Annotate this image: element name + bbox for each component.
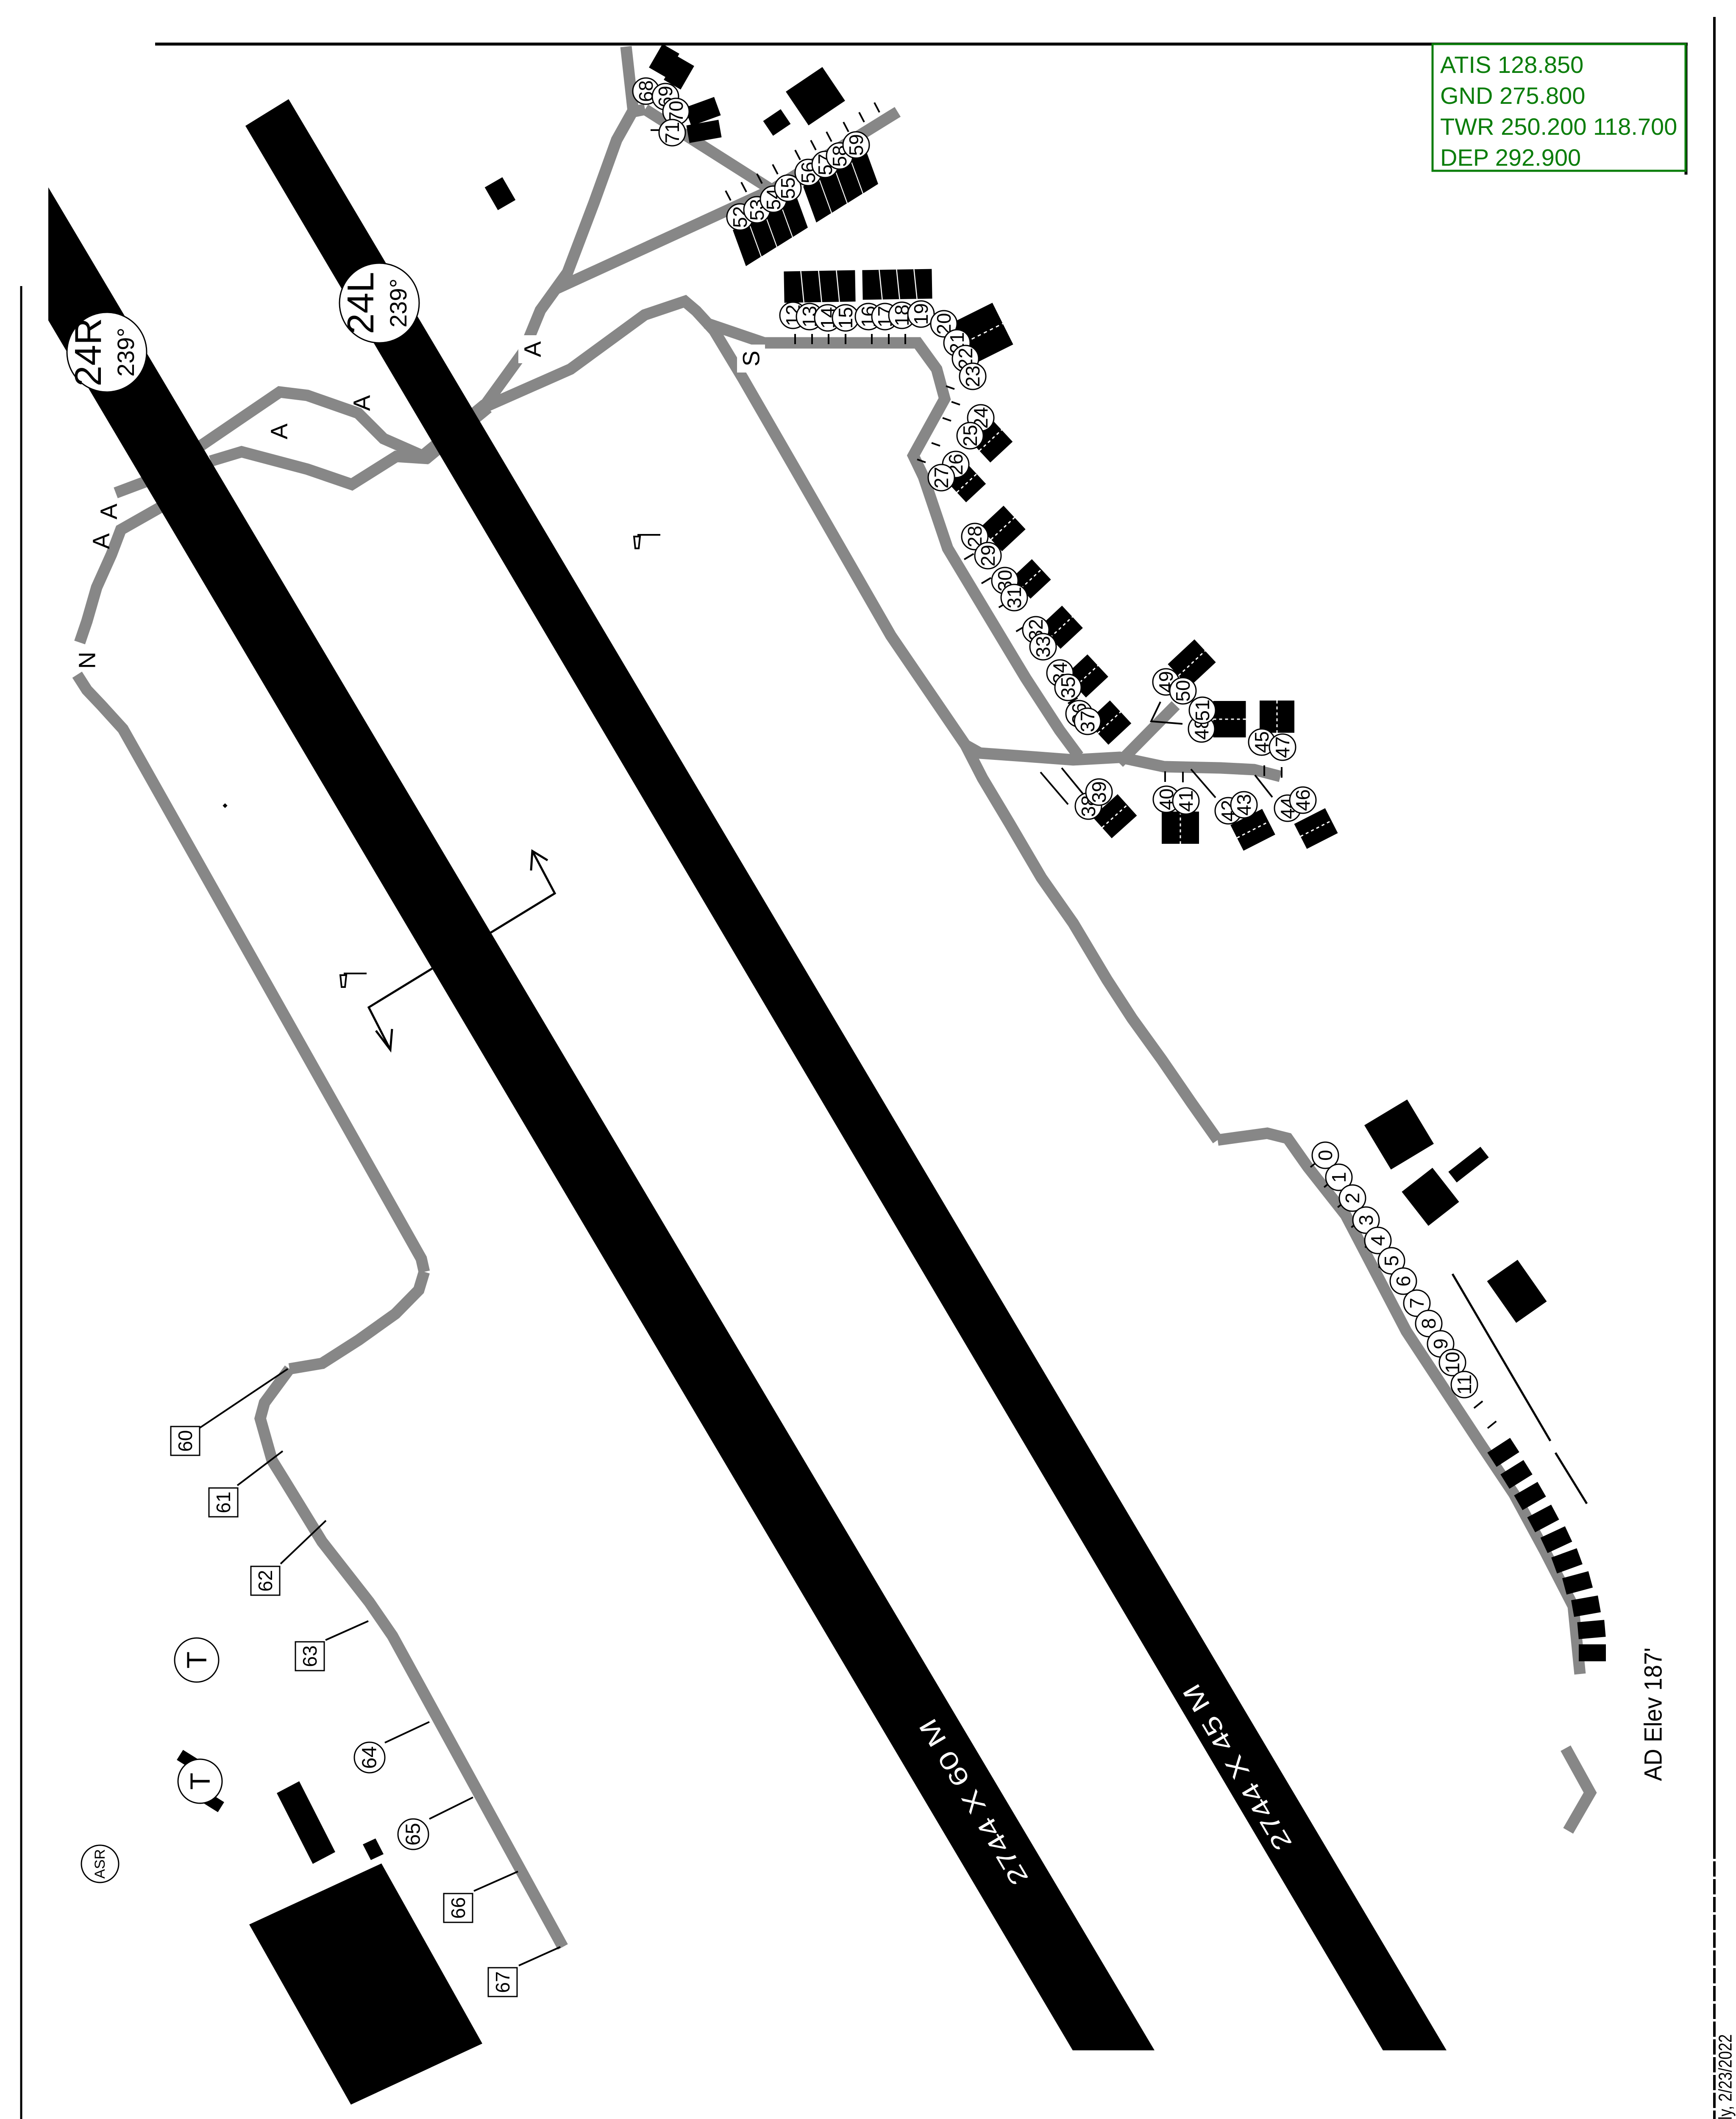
svg-text:S: S (738, 350, 765, 366)
svg-text:ATIS 128.850: ATIS 128.850 (1440, 51, 1583, 78)
svg-text:62: 62 (254, 1570, 276, 1591)
svg-text:65: 65 (402, 1823, 425, 1845)
svg-text:47: 47 (1271, 736, 1294, 758)
svg-text:61: 61 (212, 1491, 234, 1513)
svg-text:46: 46 (1292, 789, 1314, 811)
svg-text:24R: 24R (67, 318, 109, 386)
svg-text:11: 11 (1453, 1374, 1475, 1395)
svg-text:15: 15 (835, 307, 857, 328)
svg-text:50: 50 (1172, 680, 1194, 701)
svg-text:6: 6 (1392, 1276, 1414, 1287)
svg-text:59: 59 (845, 134, 867, 156)
svg-text:35: 35 (1057, 676, 1079, 698)
svg-text:A: A (88, 533, 114, 549)
svg-text:8: 8 (1418, 1318, 1440, 1329)
svg-text:43: 43 (1233, 794, 1255, 815)
svg-text:27: 27 (930, 467, 952, 488)
svg-text:60: 60 (174, 1430, 196, 1452)
svg-text:67: 67 (492, 1971, 514, 1993)
svg-text:25: 25 (959, 425, 981, 446)
svg-text:55: 55 (777, 177, 799, 199)
svg-text:1: 1 (1328, 1172, 1350, 1183)
svg-text:39: 39 (1088, 781, 1110, 803)
svg-text:AD Elev 187': AD Elev 187' (1640, 1648, 1667, 1781)
svg-text:T: T (184, 1773, 216, 1790)
svg-text:5: 5 (1380, 1255, 1402, 1266)
svg-text:N: N (74, 652, 100, 669)
svg-text:31: 31 (1003, 587, 1025, 608)
svg-text:A: A (348, 395, 375, 411)
svg-text:DEP 292.900: DEP 292.900 (1440, 144, 1581, 171)
svg-text:0: 0 (1314, 1150, 1336, 1161)
svg-text:7: 7 (1406, 1298, 1428, 1309)
svg-text:41: 41 (1175, 790, 1197, 812)
svg-text:71: 71 (661, 122, 683, 143)
svg-text:A: A (95, 503, 122, 520)
svg-text:64: 64 (359, 1746, 381, 1769)
svg-text:3: 3 (1355, 1215, 1377, 1226)
svg-text:10: 10 (1441, 1351, 1463, 1373)
svg-text:GND 275.800: GND 275.800 (1440, 82, 1585, 109)
svg-text:239°: 239° (112, 328, 139, 377)
svg-text:63: 63 (299, 1645, 321, 1667)
svg-text:70: 70 (665, 100, 687, 122)
svg-text:33: 33 (1032, 636, 1054, 657)
svg-text:19: 19 (910, 303, 932, 325)
svg-text:A: A (519, 341, 546, 357)
svg-text:TWR 250.200 118.700: TWR 250.200 118.700 (1440, 113, 1677, 140)
svg-text:A: A (266, 423, 292, 439)
svg-text:51: 51 (1191, 699, 1213, 721)
svg-text:23: 23 (962, 365, 984, 387)
svg-text:For BMS use only, 2/23/2022: For BMS use only, 2/23/2022 (1715, 2034, 1736, 2119)
svg-text:29: 29 (977, 545, 999, 566)
svg-text:4: 4 (1367, 1235, 1389, 1246)
svg-text:ASR: ASR (92, 1849, 108, 1879)
svg-text:239°: 239° (385, 278, 412, 328)
svg-text:66: 66 (447, 1897, 469, 1919)
svg-text:9: 9 (1430, 1338, 1452, 1349)
svg-text:T: T (181, 1652, 212, 1669)
svg-text:37: 37 (1077, 710, 1099, 732)
svg-text:24L: 24L (339, 272, 381, 334)
svg-text:2: 2 (1341, 1193, 1363, 1204)
